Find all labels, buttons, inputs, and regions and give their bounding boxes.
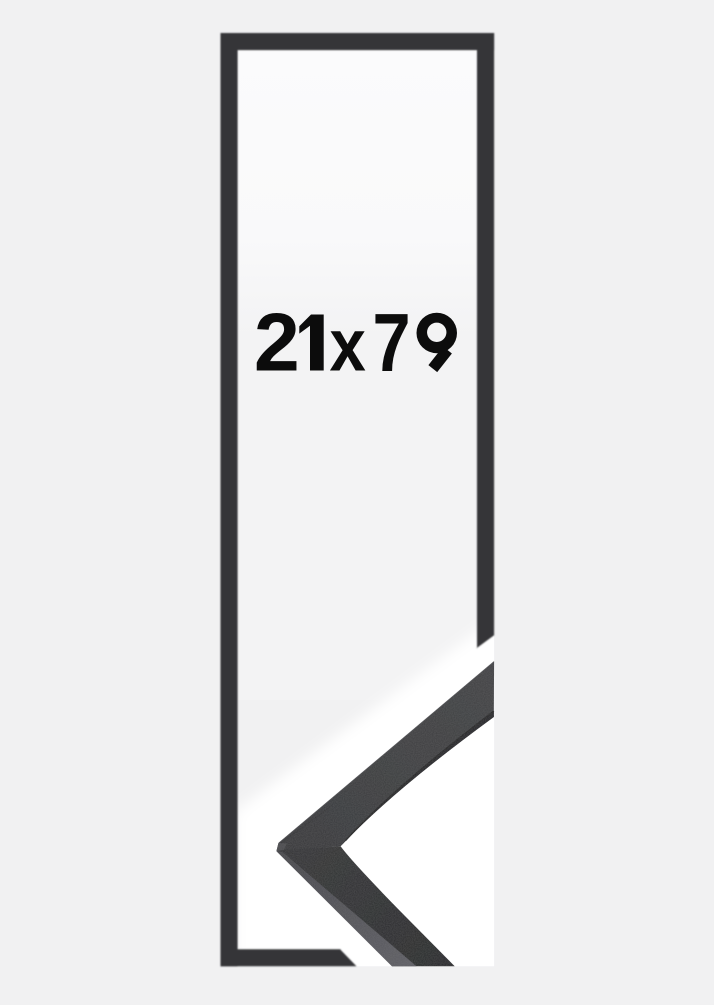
svg-text:2: 2 (254, 297, 300, 389)
svg-text:7: 7 (373, 297, 411, 389)
svg-text:x: x (330, 304, 366, 387)
